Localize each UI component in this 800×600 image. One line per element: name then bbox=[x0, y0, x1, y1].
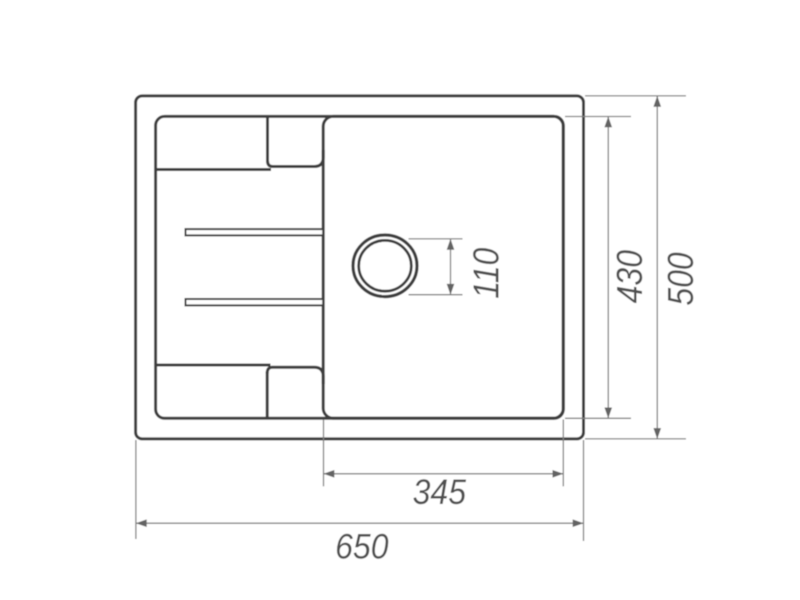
svg-text:345: 345 bbox=[413, 474, 467, 513]
svg-text:110: 110 bbox=[467, 248, 507, 299]
svg-text:500: 500 bbox=[661, 252, 701, 305]
svg-text:430: 430 bbox=[610, 250, 650, 303]
svg-text:650: 650 bbox=[335, 528, 389, 567]
